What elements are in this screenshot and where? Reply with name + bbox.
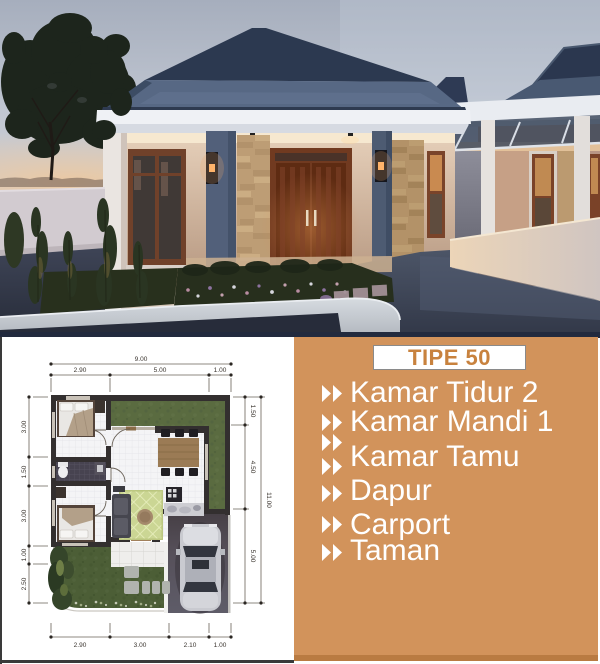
svg-text:3.00: 3.00	[134, 642, 147, 649]
svg-text:1.00: 1.00	[21, 548, 28, 561]
svg-text:2.50: 2.50	[21, 577, 28, 590]
svg-text:2.10: 2.10	[184, 642, 197, 649]
svg-text:3.00: 3.00	[21, 420, 28, 433]
svg-text:1.00: 1.00	[214, 642, 227, 649]
svg-text:1.00: 1.00	[214, 367, 227, 374]
svg-text:9.00: 9.00	[135, 356, 148, 363]
svg-text:4.50: 4.50	[249, 461, 256, 474]
svg-text:1.50: 1.50	[249, 405, 256, 418]
svg-text:11.00: 11.00	[265, 492, 272, 508]
svg-text:2.90: 2.90	[74, 367, 87, 374]
svg-text:5.00: 5.00	[249, 550, 256, 563]
svg-text:5.00: 5.00	[154, 367, 167, 374]
svg-text:3.00: 3.00	[21, 509, 28, 522]
svg-text:2.90: 2.90	[74, 642, 87, 649]
svg-text:1.50: 1.50	[21, 465, 28, 478]
